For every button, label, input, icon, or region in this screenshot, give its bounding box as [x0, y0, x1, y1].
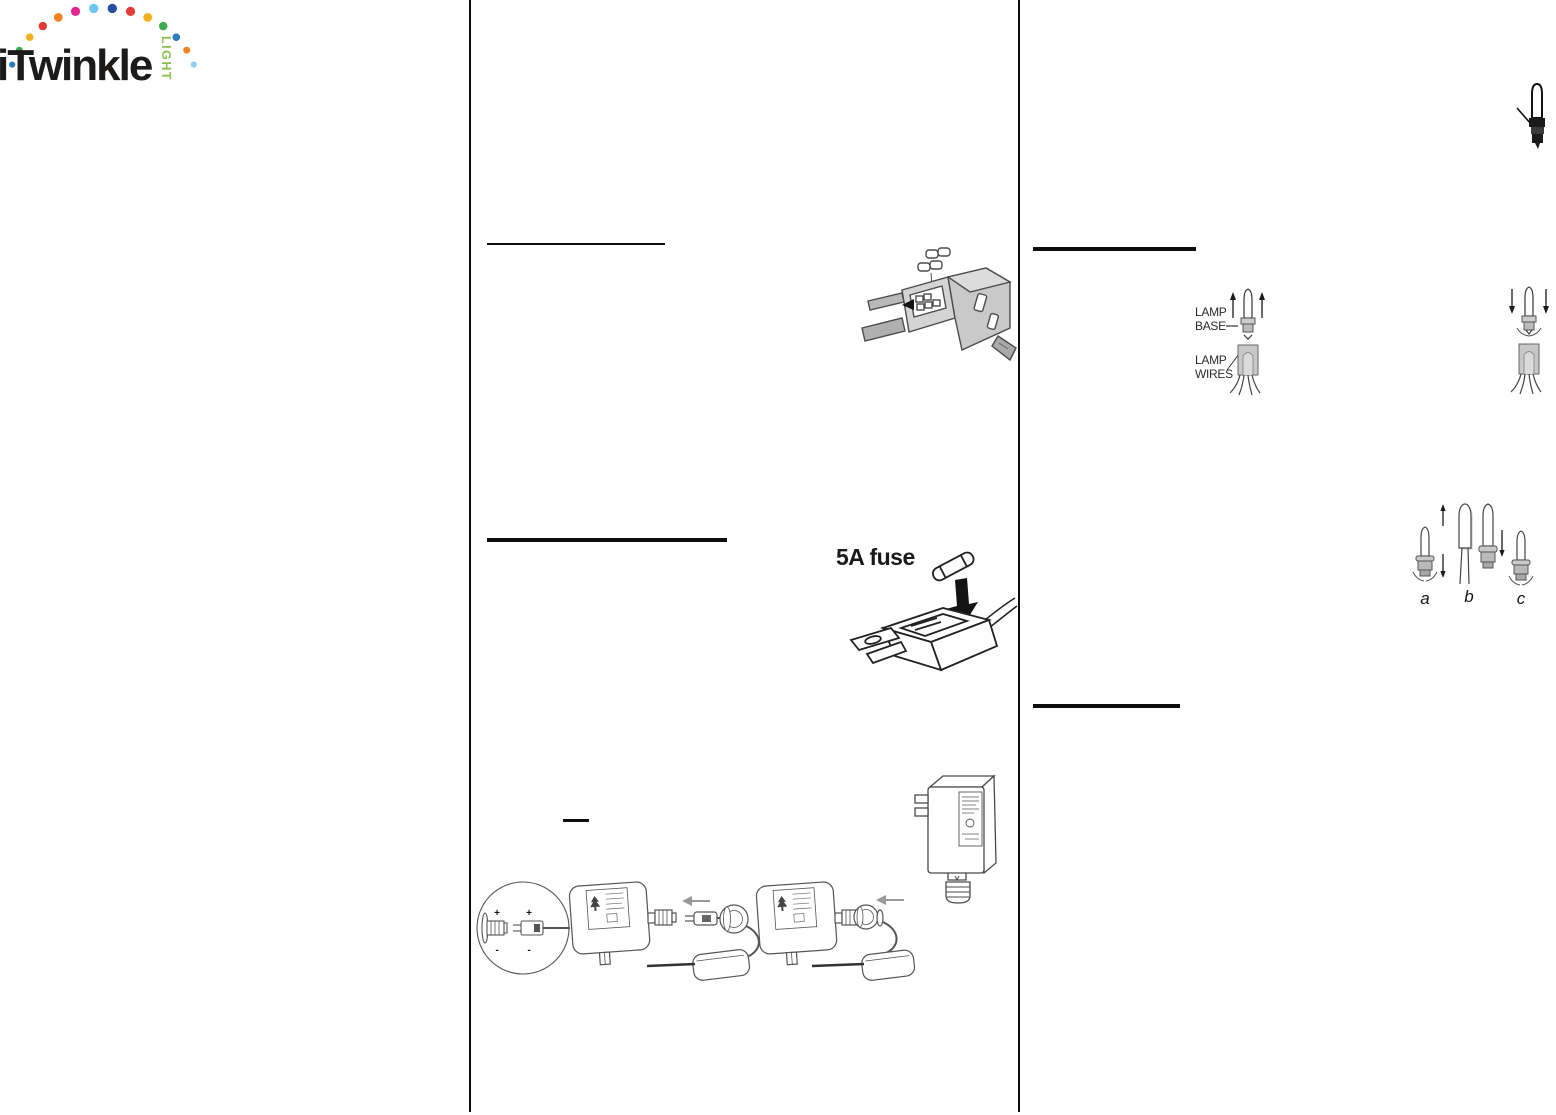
- short-word-rule: [563, 819, 589, 822]
- power-adapter-illustration: [910, 770, 1006, 908]
- section-rule-fuse-replacement: [487, 538, 727, 542]
- column-divider-right: [1018, 0, 1020, 1112]
- lamp-wires-label-line1: LAMP: [1195, 353, 1227, 367]
- lamp-wires: [1511, 374, 1541, 394]
- step-label-c: c: [1517, 589, 1526, 608]
- section-rule-lamp-removal: [1033, 247, 1196, 251]
- lamp-base-label-line1: LAMP: [1195, 305, 1227, 319]
- step-label-a: a: [1420, 589, 1429, 608]
- lamp-insert-diagram: [1503, 284, 1556, 402]
- push-left-arrow-icon: [682, 896, 710, 906]
- lamp-wires: [1230, 375, 1260, 395]
- itwinkle-logo: iTwinkle LIGHT: [0, 2, 218, 114]
- lamp-base-diagram: LAMP BASE LAMP WIRES: [1193, 286, 1277, 400]
- polarity-plus-right: +: [526, 908, 532, 919]
- fuse-replacement-illustration: [845, 552, 1017, 672]
- lamp-wires-label-line2: WIRES: [1195, 367, 1233, 381]
- insert-down-arrow-icon: [1499, 530, 1504, 557]
- column-divider-left: [469, 0, 471, 1112]
- plug-with-fuses-illustration: [858, 244, 1016, 376]
- section-rule-lamp-replacement: [1033, 704, 1180, 708]
- logo-brand-text: iTwinkle: [0, 41, 152, 90]
- lamp-base-label-line2: BASE: [1195, 319, 1226, 333]
- adapter-connect-step2-illustration: [750, 872, 920, 990]
- push-left-arrow-icon: [876, 895, 904, 905]
- manual-page: iTwinkle LIGHT 5A fuse: [0, 0, 1556, 1115]
- step-label-b: b: [1464, 587, 1473, 606]
- section-rule-fuse-access: [487, 243, 665, 245]
- adapter-connect-step1-illustration: [563, 872, 768, 990]
- mini-lamp-illustration: [1514, 82, 1556, 154]
- polarity-minus-right: -: [527, 945, 530, 956]
- pull-push-arrows-icon: [1440, 504, 1445, 578]
- logo-sub-text: LIGHT: [159, 36, 173, 81]
- bulb-replacement-abc-diagram: a b c: [1412, 496, 1546, 612]
- connector-polarity-inset: + - + -: [476, 876, 574, 980]
- polarity-minus-left: -: [495, 945, 498, 956]
- polarity-plus-left: +: [494, 908, 500, 919]
